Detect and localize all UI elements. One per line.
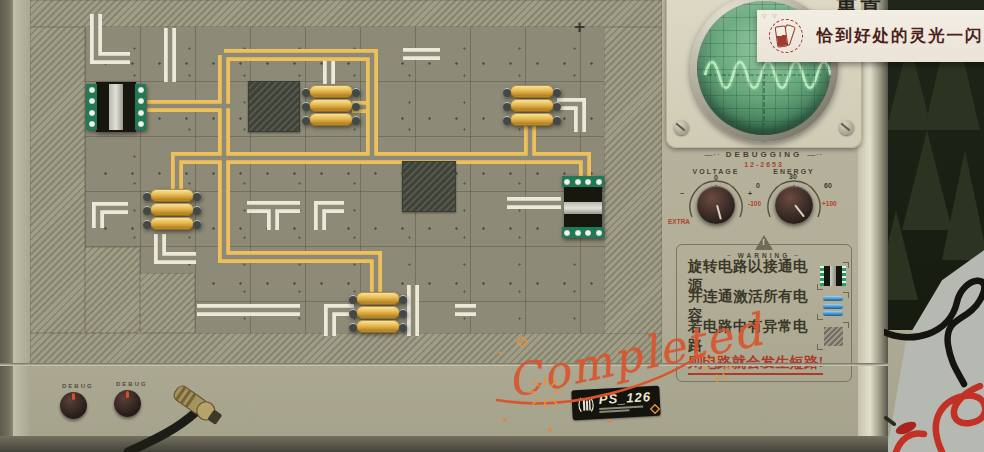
toast-corner-marks: ▽ ▽ bbox=[762, 12, 779, 19]
rule-text: 若电路中有异常电路 bbox=[688, 317, 820, 355]
warning-triangle-icon bbox=[755, 235, 773, 250]
debugging-serial: 12-2653 bbox=[666, 161, 862, 168]
model-number: PS_126 bbox=[598, 391, 651, 406]
energy-tick-0: 0 bbox=[756, 182, 760, 189]
capacitor-pill bbox=[150, 189, 194, 202]
capacitor-pill bbox=[356, 306, 400, 319]
clip-tip bbox=[886, 418, 894, 424]
trace bbox=[177, 158, 585, 196]
warning-rule-row: 若电路中有异常电路 bbox=[688, 323, 846, 349]
voltage-tick-min: − bbox=[680, 190, 684, 197]
cables-layer bbox=[884, 0, 984, 452]
voltage-tick-zero: 0 bbox=[714, 174, 718, 181]
voltage-needle bbox=[716, 205, 722, 220]
black-probe-cable bbox=[884, 281, 984, 384]
trace bbox=[96, 14, 130, 58]
capacitor-icon bbox=[820, 294, 846, 318]
chip-component[interactable] bbox=[86, 80, 146, 134]
energy-knob-group: ENERGY 0 30 60 -100 +100 bbox=[752, 168, 836, 238]
chip-pins bbox=[562, 227, 604, 238]
circuit-board[interactable]: + bbox=[30, 0, 662, 365]
energy-needle bbox=[794, 204, 805, 217]
trace bbox=[320, 207, 344, 230]
obstacle-tile[interactable] bbox=[248, 81, 300, 132]
energy-tick-30: 30 bbox=[789, 173, 797, 180]
capacitor-pill bbox=[356, 320, 400, 333]
capacitor-pill bbox=[309, 113, 353, 126]
debugging-title: DEBUGGING bbox=[666, 150, 862, 159]
notification-text: 恰到好处的灵光一闪 bbox=[817, 25, 984, 47]
capacitor-pill bbox=[150, 217, 194, 230]
voltage-extra-label: EXTRA bbox=[668, 218, 690, 225]
probe-connector[interactable] bbox=[110, 378, 230, 452]
red-wire-lead bbox=[896, 433, 924, 452]
chip-pins bbox=[86, 84, 97, 130]
energy-knob[interactable] bbox=[775, 186, 813, 224]
trace bbox=[98, 208, 128, 228]
machine-left-bevel bbox=[13, 0, 30, 452]
energy-min-label: -100 bbox=[748, 200, 761, 207]
debug-knob-label: DEBUG bbox=[62, 383, 94, 389]
anomaly-tile-icon bbox=[820, 324, 846, 348]
warning-header: WARNING bbox=[677, 235, 851, 259]
capacitor-pill bbox=[510, 85, 554, 98]
capacitor-component[interactable] bbox=[504, 84, 560, 128]
capacitor-pill bbox=[356, 292, 400, 305]
capacitor-pill bbox=[510, 113, 554, 126]
chip-pins bbox=[135, 84, 146, 130]
capacitor-component[interactable] bbox=[144, 188, 200, 232]
chip-pins bbox=[562, 176, 604, 187]
screw-icon bbox=[674, 120, 689, 135]
warning-panel: WARNING 旋转电路以接通电源 并连通激活所有电容 若电路中有异常电路 则电… bbox=[676, 244, 852, 382]
chip-label-stripe bbox=[564, 202, 602, 214]
warning-rule-row: 旋转电路以接通电源 bbox=[688, 263, 846, 289]
notification-toast: ▽ ▽ 恰到好处的灵光一闪 bbox=[757, 10, 984, 62]
device-nameplate: PS_126 bbox=[571, 386, 660, 421]
game-screen: + DEBUGGING 12-2653 VOLTAGE − 0 + bbox=[0, 0, 984, 452]
capacitor-pill bbox=[309, 85, 353, 98]
debug-knob-left[interactable] bbox=[60, 392, 87, 419]
capacitor-component[interactable] bbox=[350, 291, 406, 335]
trace bbox=[160, 234, 196, 258]
inspiration-cards-icon bbox=[769, 19, 803, 53]
brand-logo-icon bbox=[578, 395, 595, 414]
energy-tick-60: 60 bbox=[824, 182, 832, 189]
capacitor-pill bbox=[150, 203, 194, 216]
red-wire bbox=[936, 386, 984, 452]
capacitor-pill bbox=[309, 99, 353, 112]
energy-max-label: +100 bbox=[822, 200, 837, 207]
voltage-knob-group: VOLTAGE − 0 + EXTRA bbox=[674, 168, 758, 238]
cursor-crosshair-icon: + bbox=[574, 16, 585, 38]
screw-icon bbox=[839, 120, 854, 135]
warning-rule-row: 并连通激活所有电容 bbox=[688, 293, 846, 319]
capacitor-component[interactable] bbox=[303, 84, 359, 128]
capacitor-pill bbox=[510, 99, 554, 112]
chip-icon bbox=[820, 264, 846, 288]
voltage-knob[interactable] bbox=[697, 186, 735, 224]
obstacle-tile[interactable] bbox=[402, 161, 456, 212]
machine-left-edge bbox=[0, 0, 13, 452]
chip-component[interactable] bbox=[560, 176, 606, 238]
chip-label-stripe bbox=[109, 84, 123, 130]
